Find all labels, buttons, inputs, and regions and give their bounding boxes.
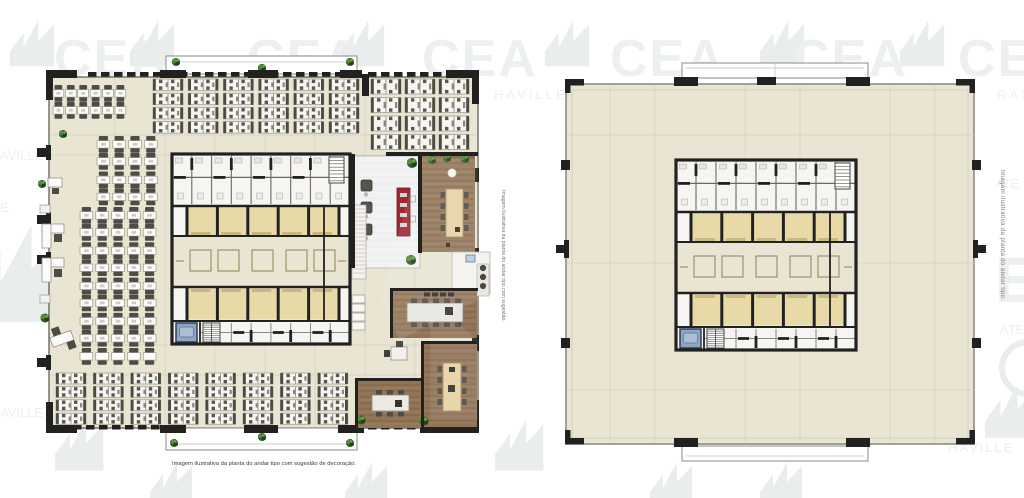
svg-text:Imagem ilustrativa da planta d: Imagem ilustrativa da planta do andar ti…	[999, 170, 1005, 301]
svg-text:RATE: RATE	[997, 87, 1024, 102]
svg-text:E: E	[0, 200, 9, 215]
svg-text:ATE: ATE	[995, 176, 1020, 191]
svg-text:Imagem ilustrativa da planta d: Imagem ilustrativa da planta do andar ti…	[500, 190, 506, 322]
svg-text:AVILLE: AVILLE	[0, 405, 43, 420]
svg-text:ATE: ATE	[1000, 322, 1024, 337]
svg-text:HAVILLE: HAVILLE	[494, 87, 568, 102]
svg-text:Imagem ilustrativa da planta d: Imagem ilustrativa da planta do andar ti…	[172, 461, 356, 467]
svg-text:AVILLE: AVILLE	[0, 148, 43, 163]
svg-text:CEA: CEA	[610, 30, 726, 88]
